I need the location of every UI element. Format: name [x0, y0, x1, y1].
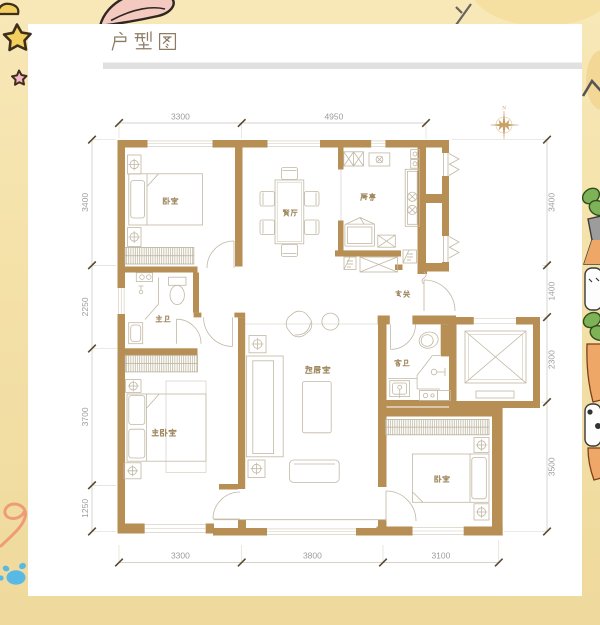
svg-text:2300: 2300 [547, 350, 557, 369]
svg-text:3800: 3800 [303, 551, 322, 561]
svg-text:3500: 3500 [547, 457, 557, 476]
svg-text:3300: 3300 [171, 551, 190, 561]
svg-text:2250: 2250 [80, 297, 90, 316]
svg-text:3300: 3300 [171, 112, 190, 122]
svg-text:1250: 1250 [80, 499, 90, 518]
svg-text:3400: 3400 [80, 193, 90, 212]
svg-text:3400: 3400 [547, 193, 557, 212]
svg-text:N: N [502, 107, 506, 112]
svg-text:4950: 4950 [324, 112, 343, 122]
svg-text:3700: 3700 [80, 407, 90, 426]
svg-text:1400: 1400 [547, 281, 557, 300]
svg-text:3100: 3100 [431, 551, 450, 561]
